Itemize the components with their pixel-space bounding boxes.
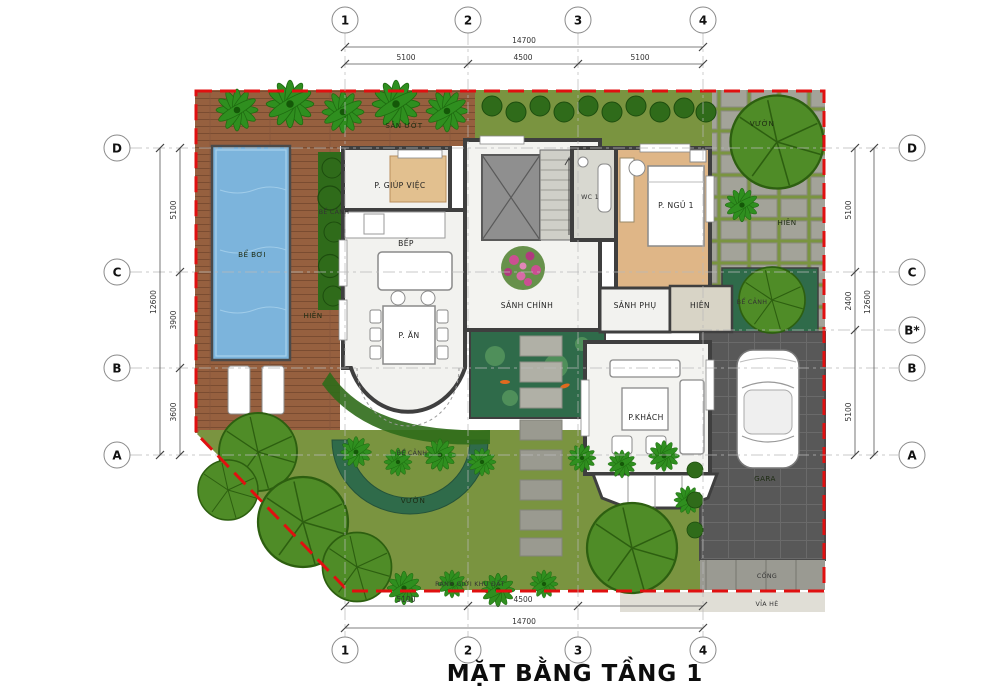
- dim-right-seg3: 5100: [844, 402, 853, 421]
- dim-left-seg3: 3600: [169, 402, 178, 421]
- floor-plan-drawing: 14700 5100 4500 5100 5100 4500 14700 126…: [0, 0, 1000, 700]
- dim-right-total: 12600: [863, 290, 872, 314]
- window-marker: [398, 150, 442, 158]
- svg-text:C: C: [908, 266, 917, 280]
- room-maid: [343, 148, 450, 210]
- svg-text:1: 1: [341, 14, 349, 28]
- coffee-table: [622, 388, 668, 430]
- label-pool: BỂ BƠI: [238, 249, 266, 259]
- room-bedroom1: [616, 144, 710, 290]
- label-sidewalk: VỈA HÈ: [756, 599, 779, 608]
- svg-text:C: C: [113, 266, 122, 280]
- svg-text:1: 1: [341, 644, 349, 658]
- label-garden-bottom: VƯỜN: [401, 496, 426, 505]
- label-garage: GARA: [754, 474, 776, 483]
- svg-text:A: A: [907, 449, 917, 463]
- chair: [629, 160, 645, 176]
- sidewalk: [620, 592, 825, 612]
- bathtub: [598, 164, 611, 212]
- stool: [421, 291, 435, 305]
- label-main-hall: SẢNH CHÍNH: [501, 301, 553, 310]
- svg-text:D: D: [907, 142, 917, 156]
- svg-text:B: B: [907, 362, 916, 376]
- dim-top-seg1: 5100: [396, 53, 415, 62]
- sun-lounger: [262, 366, 284, 414]
- col-bubbles-bottom: 1 2 3 4: [332, 637, 716, 663]
- svg-text:2: 2: [464, 14, 472, 28]
- dim-left-total: 12600: [149, 290, 158, 314]
- label-wet-yard: SÂN ƯỚT: [385, 121, 422, 130]
- dim-left-seg2: 3900: [169, 310, 178, 329]
- dim-top-total: 14700: [512, 36, 536, 45]
- toilet: [578, 157, 588, 167]
- svg-text:3: 3: [574, 644, 582, 658]
- dim-right-seg2: 2400: [844, 291, 853, 310]
- svg-text:A: A: [112, 449, 122, 463]
- nightstand: [690, 150, 706, 162]
- label-maid-room: P. GIÚP VIỆC: [374, 181, 425, 190]
- label-living: P.KHÁCH: [628, 413, 663, 422]
- kitchen-counter: [345, 212, 445, 238]
- svg-text:4: 4: [699, 14, 707, 28]
- page-title: MẶT BẰNG TẦNG 1: [447, 656, 703, 687]
- row-bubbles-right: D C B* B A: [899, 135, 925, 468]
- label-porch-left: HIÊN: [303, 311, 322, 320]
- col-bubbles-top: 1 2 3 4: [332, 7, 716, 33]
- dim-top-seg2: 4500: [513, 53, 532, 62]
- row-bubbles-left: D C B A: [104, 135, 130, 468]
- dim-bottom-total: 14700: [512, 617, 536, 626]
- stool: [391, 291, 405, 305]
- label-bedroom1: P. NGỦ 1: [658, 200, 694, 210]
- svg-text:4: 4: [699, 644, 707, 658]
- kitchen-island: [378, 252, 452, 290]
- dim-left-seg1: 5100: [169, 200, 178, 219]
- label-porch-rear: HIÊN: [690, 301, 710, 310]
- dim-right-seg1: 5100: [844, 200, 853, 219]
- svg-text:B: B: [112, 362, 121, 376]
- dim-bottom-seg2: 4500: [513, 595, 532, 604]
- svg-text:3: 3: [574, 14, 582, 28]
- svg-text:2: 2: [464, 644, 472, 658]
- svg-text:B*: B*: [904, 324, 920, 338]
- label-rear-hall: SẢNH PHỤ: [614, 301, 657, 310]
- svg-text:D: D: [112, 142, 122, 156]
- label-garden-top: VƯỜN: [750, 119, 775, 128]
- sun-lounger: [228, 366, 250, 414]
- label-dining: P. ĂN: [398, 331, 419, 340]
- dim-top-seg3: 5100: [630, 53, 649, 62]
- floor-plan-page: 14700 5100 4500 5100 5100 4500 14700 126…: [0, 0, 1000, 700]
- label-kitchen: BẾP: [398, 238, 414, 248]
- flower-arrangement: [501, 246, 545, 290]
- room-living: [585, 342, 717, 508]
- label-porch-top: HIÊN: [777, 218, 796, 227]
- dim-bottom-seg1: 5100: [396, 595, 415, 604]
- label-wc1: WC 1: [581, 194, 599, 201]
